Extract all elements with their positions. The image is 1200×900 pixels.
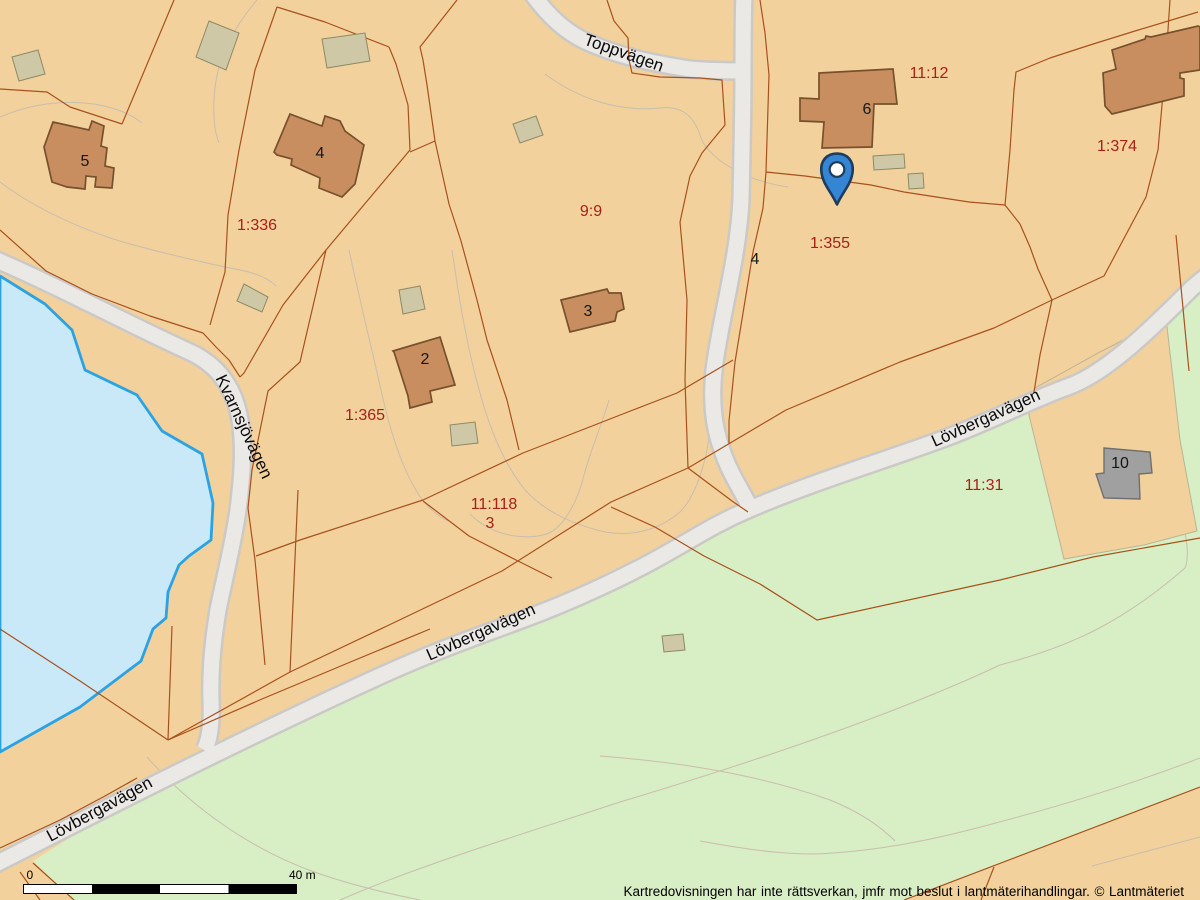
svg-text:11:12: 11:12 (910, 65, 949, 82)
svg-text:1:336: 1:336 (237, 217, 277, 234)
svg-text:6: 6 (863, 101, 872, 118)
svg-text:Kartredovisningen har inte rät: Kartredovisningen har inte rättsverkan, … (624, 884, 1185, 899)
svg-text:4: 4 (316, 145, 325, 162)
svg-text:1:365: 1:365 (345, 407, 385, 424)
svg-text:0: 0 (27, 868, 34, 882)
svg-text:40 m: 40 m (289, 868, 316, 882)
svg-text:5: 5 (81, 153, 90, 170)
svg-text:4: 4 (751, 251, 760, 268)
svg-text:9:9: 9:9 (580, 203, 602, 220)
svg-text:3: 3 (486, 515, 495, 532)
svg-text:10: 10 (1111, 455, 1129, 472)
svg-text:1:355: 1:355 (810, 235, 850, 252)
svg-text:11:118: 11:118 (471, 496, 518, 513)
svg-text:2: 2 (421, 351, 430, 368)
svg-text:1:374: 1:374 (1097, 138, 1137, 155)
svg-text:11:31: 11:31 (965, 477, 1004, 494)
svg-text:3: 3 (584, 303, 593, 320)
